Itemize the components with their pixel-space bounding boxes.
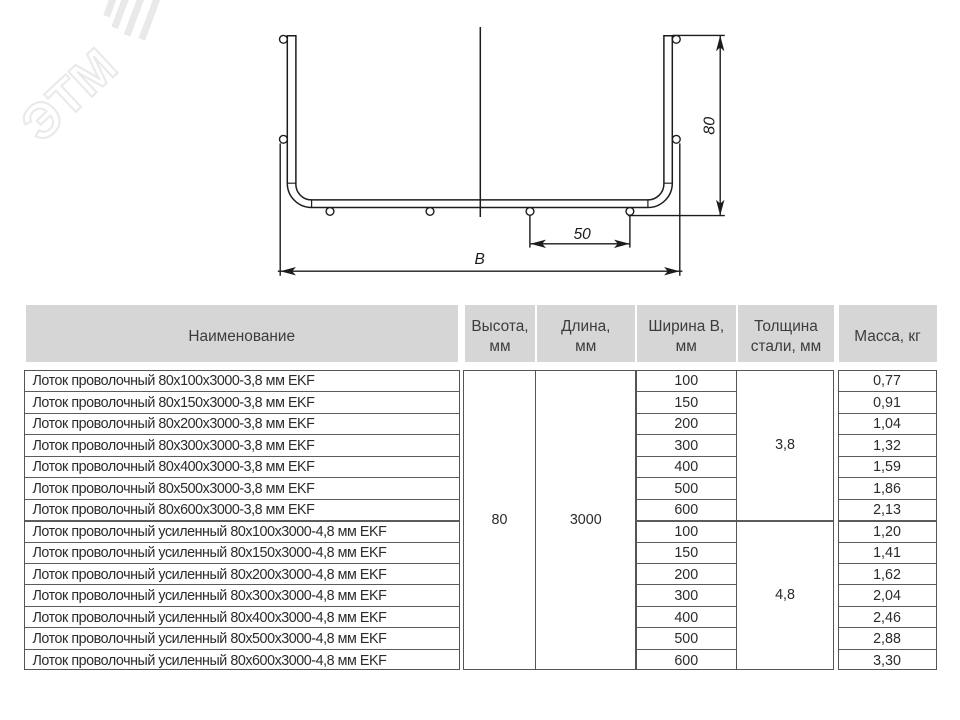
svg-text:50: 50 — [574, 226, 592, 243]
svg-text:В: В — [475, 251, 485, 268]
svg-text:80: 80 — [702, 117, 719, 135]
